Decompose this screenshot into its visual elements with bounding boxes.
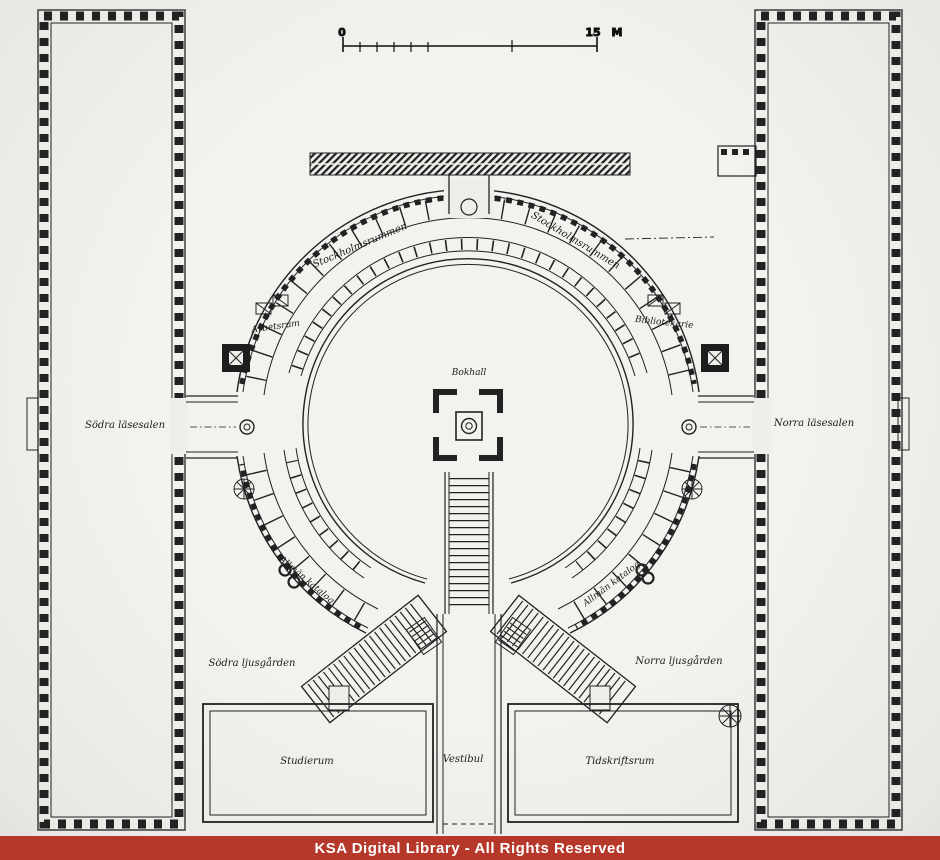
- scale-bar: 0 15 M: [338, 26, 622, 52]
- room-labels: Stockholmsrummen Stockholmsrummen Arbets…: [85, 210, 854, 767]
- left-wing-door-gap: [170, 398, 188, 454]
- central-core: [436, 392, 500, 458]
- label-studierum: Studierum: [280, 756, 334, 767]
- label-sodra-ljusgarden: Södra ljusgården: [209, 657, 296, 669]
- stair-tower-left: [222, 344, 250, 372]
- south-court-porch: [329, 686, 349, 710]
- stair-tower-right: [701, 344, 729, 372]
- watermark-bar: KSA Digital Library - All Rights Reserve…: [0, 836, 940, 860]
- core-lift-circle: [462, 419, 477, 434]
- label-allman-katalog-left: Allmän katalog: [276, 554, 336, 607]
- label-bokhall: Bokhall: [451, 368, 487, 378]
- section-line: [625, 237, 714, 239]
- north-entrance: [444, 175, 494, 218]
- spiral-stair-right: [682, 479, 702, 499]
- label-sodra-lasesalen: Södra läsesalen: [85, 420, 165, 431]
- top-portico-wall: [310, 153, 630, 175]
- label-tidskriftsrum: Tidskriftsrum: [586, 756, 655, 767]
- main-stair: [445, 472, 493, 614]
- north-court-porch: [590, 686, 610, 710]
- label-stockholmsrummen-right: Stockholmsrummen: [529, 210, 622, 272]
- spiral-stair-left: [234, 479, 254, 499]
- watermark-text: KSA Digital Library - All Rights Reserve…: [314, 840, 625, 857]
- label-vestibul: Vestibul: [443, 754, 484, 765]
- floor-plan-drawing: 0 15 M Stockholmsrummen Stockholmsrummen…: [0, 0, 940, 860]
- label-bibliotekarie: Bibliotekarie: [634, 315, 694, 331]
- south-corridor: [186, 396, 254, 458]
- vestibule-passage: [437, 614, 501, 834]
- label-norra-lasesalen: Norra läsesalen: [773, 418, 854, 429]
- label-norra-ljusgarden: Norra ljusgården: [634, 655, 722, 667]
- north-corridor: [682, 396, 754, 458]
- scale-unit-label: M: [612, 26, 623, 39]
- scanned-floor-plan: 0 15 M Stockholmsrummen Stockholmsrummen…: [0, 0, 940, 860]
- rotunda-lower-right-arcade: [558, 448, 699, 633]
- scale-zero-label: 0: [338, 26, 346, 39]
- left-wing-outer-porch: [27, 398, 38, 450]
- scale-end-label: 15: [585, 26, 600, 39]
- rotunda-upper-arcade: [237, 189, 699, 395]
- right-wing-door-gap: [753, 398, 771, 454]
- right-wing-annex: [718, 146, 756, 176]
- rotunda-lower-left-arcade: [237, 448, 378, 633]
